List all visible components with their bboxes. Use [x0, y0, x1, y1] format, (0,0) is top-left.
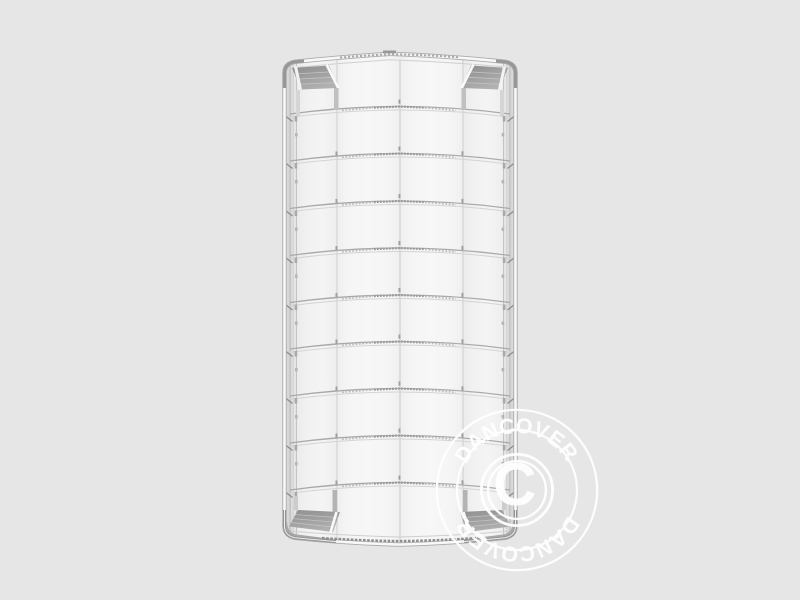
svg-text:C: C	[493, 451, 536, 518]
